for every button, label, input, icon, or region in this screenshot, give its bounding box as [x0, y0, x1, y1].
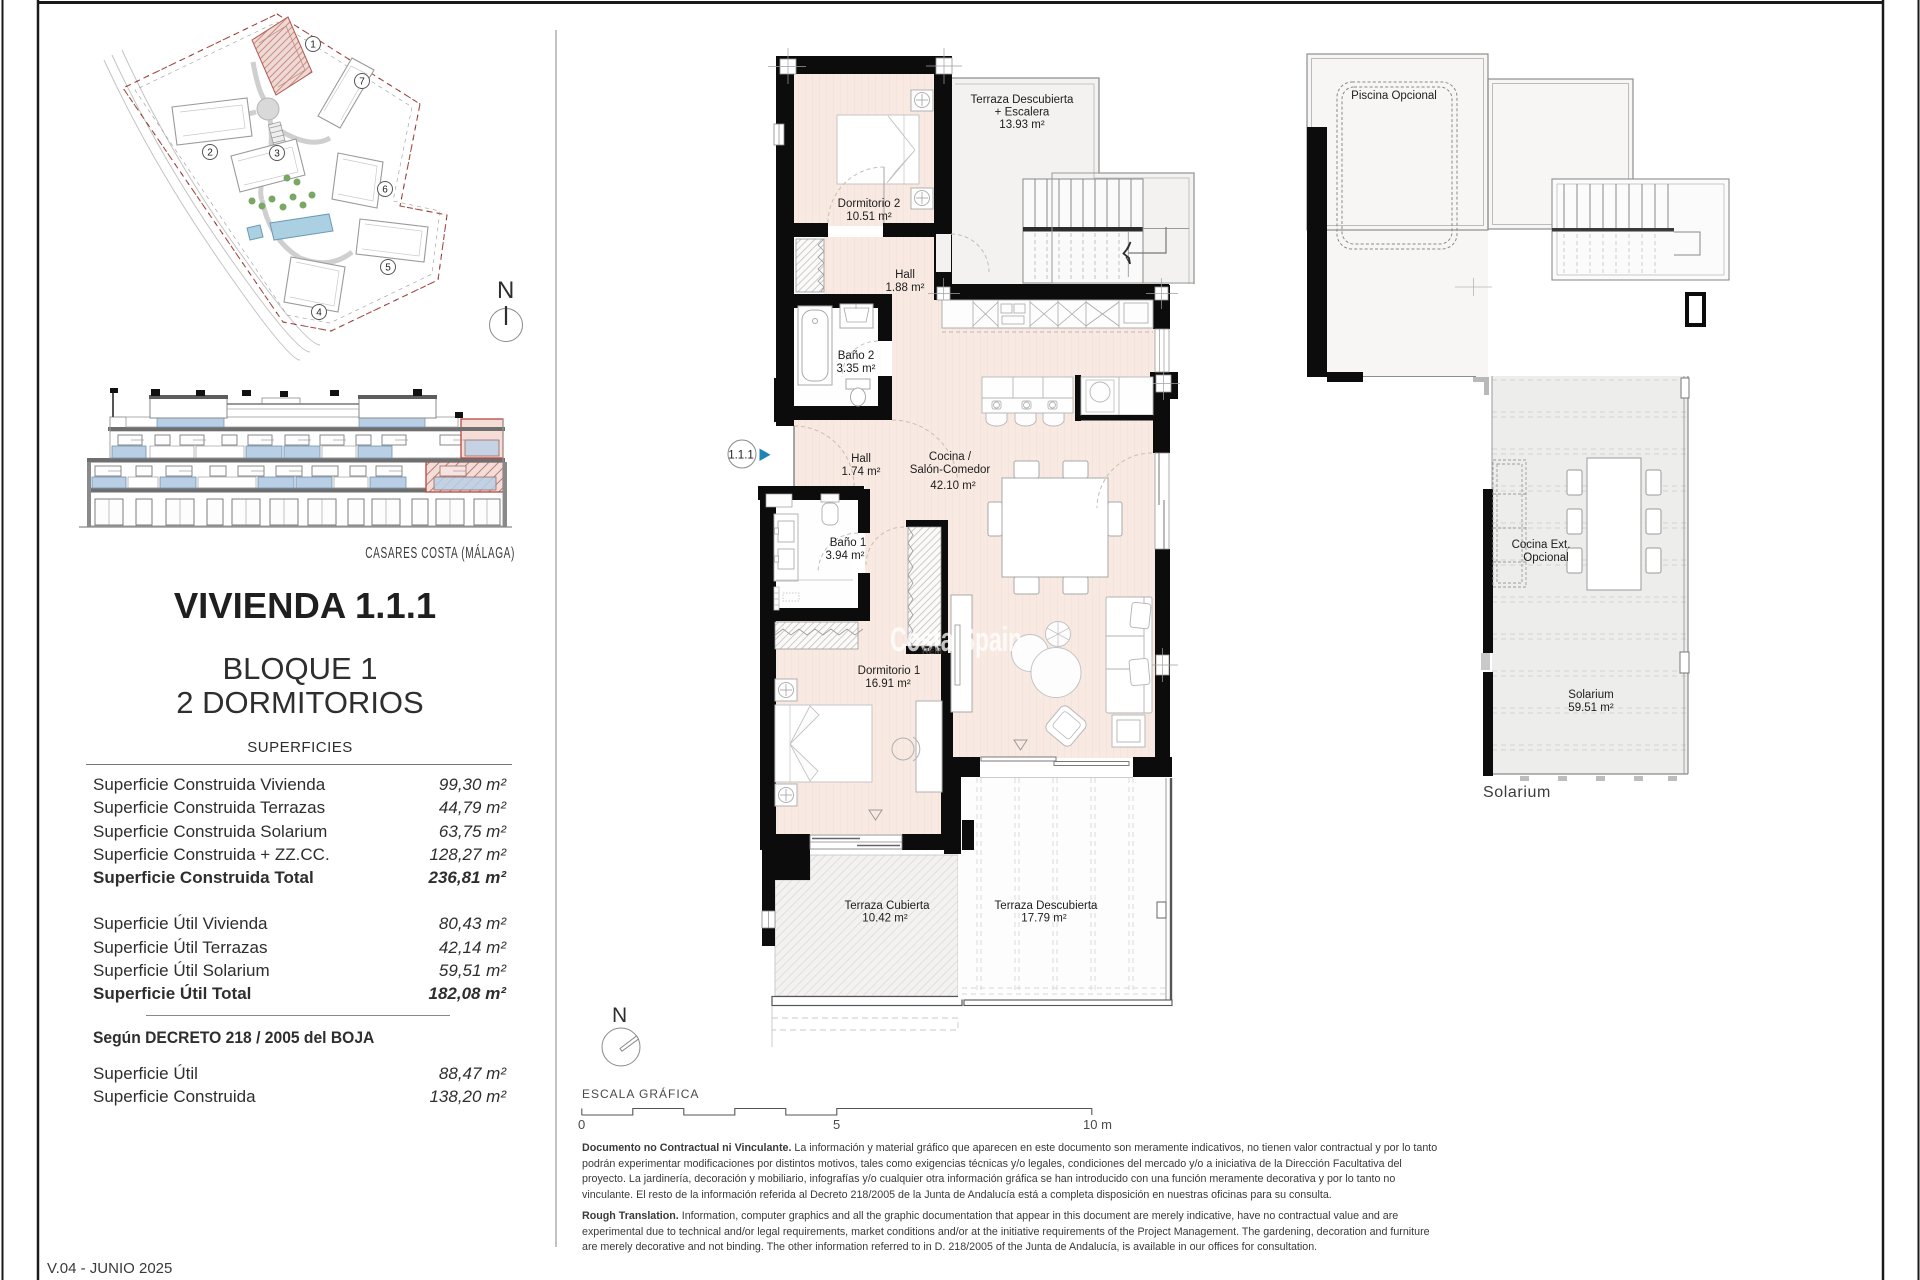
svg-text:Baño 1: Baño 1: [830, 537, 866, 549]
svg-text:2: 2: [207, 148, 213, 159]
svg-text:13.93 m²: 13.93 m²: [999, 119, 1045, 131]
svg-text:10.42 m²: 10.42 m²: [862, 913, 908, 925]
svg-text:1.1.1: 1.1.1: [728, 450, 754, 462]
svg-text:42.10 m²: 42.10 m²: [930, 480, 976, 492]
svg-text:1.88 m²: 1.88 m²: [886, 282, 925, 294]
svg-text:Terraza Descubierta: Terraza Descubierta: [971, 94, 1075, 106]
svg-text:6: 6: [382, 185, 388, 196]
svg-text:Solarium: Solarium: [1568, 689, 1613, 701]
svg-text:Dormitorio 1: Dormitorio 1: [858, 665, 921, 677]
svg-text:Solarium: Solarium: [1483, 784, 1551, 801]
svg-text:16.91 m²: 16.91 m²: [865, 678, 911, 690]
svg-text:N: N: [497, 277, 514, 304]
svg-text:7: 7: [359, 77, 365, 88]
svg-text:Opcional: Opcional: [1523, 552, 1568, 564]
svg-text:Piscina Opcional: Piscina Opcional: [1351, 90, 1437, 102]
svg-text:17.79 m²: 17.79 m²: [1021, 913, 1067, 925]
svg-text:Cocina /: Cocina /: [929, 451, 972, 463]
svg-text:5: 5: [385, 263, 391, 274]
svg-text:REM: REM: [922, 646, 942, 656]
svg-text:N: N: [612, 1004, 627, 1027]
svg-text:3.35 m²: 3.35 m²: [837, 363, 876, 375]
svg-text:Hall: Hall: [851, 453, 871, 465]
svg-text:Terraza Descubierta: Terraza Descubierta: [995, 900, 1099, 912]
svg-text:+ Escalera: + Escalera: [995, 107, 1050, 119]
svg-text:Hall: Hall: [895, 269, 915, 281]
svg-text:Salón-Comedor: Salón-Comedor: [910, 464, 991, 476]
svg-text:Terraza Cubierta: Terraza Cubierta: [844, 900, 930, 912]
svg-text:Dormitorio 2: Dormitorio 2: [838, 198, 901, 210]
svg-text:59.51 m²: 59.51 m²: [1568, 702, 1614, 714]
svg-text:3.94 m²: 3.94 m²: [826, 550, 865, 562]
svg-text:3: 3: [274, 149, 280, 160]
svg-text:Baño 2: Baño 2: [838, 350, 874, 362]
svg-text:1: 1: [310, 40, 316, 51]
svg-text:Cocina Ext.: Cocina Ext.: [1512, 539, 1571, 551]
svg-text:10.51 m²: 10.51 m²: [846, 211, 892, 223]
svg-text:1.74 m²: 1.74 m²: [842, 466, 881, 478]
svg-text:4: 4: [316, 308, 322, 319]
svg-text:Costa Spain: Costa Spain: [890, 621, 1022, 659]
